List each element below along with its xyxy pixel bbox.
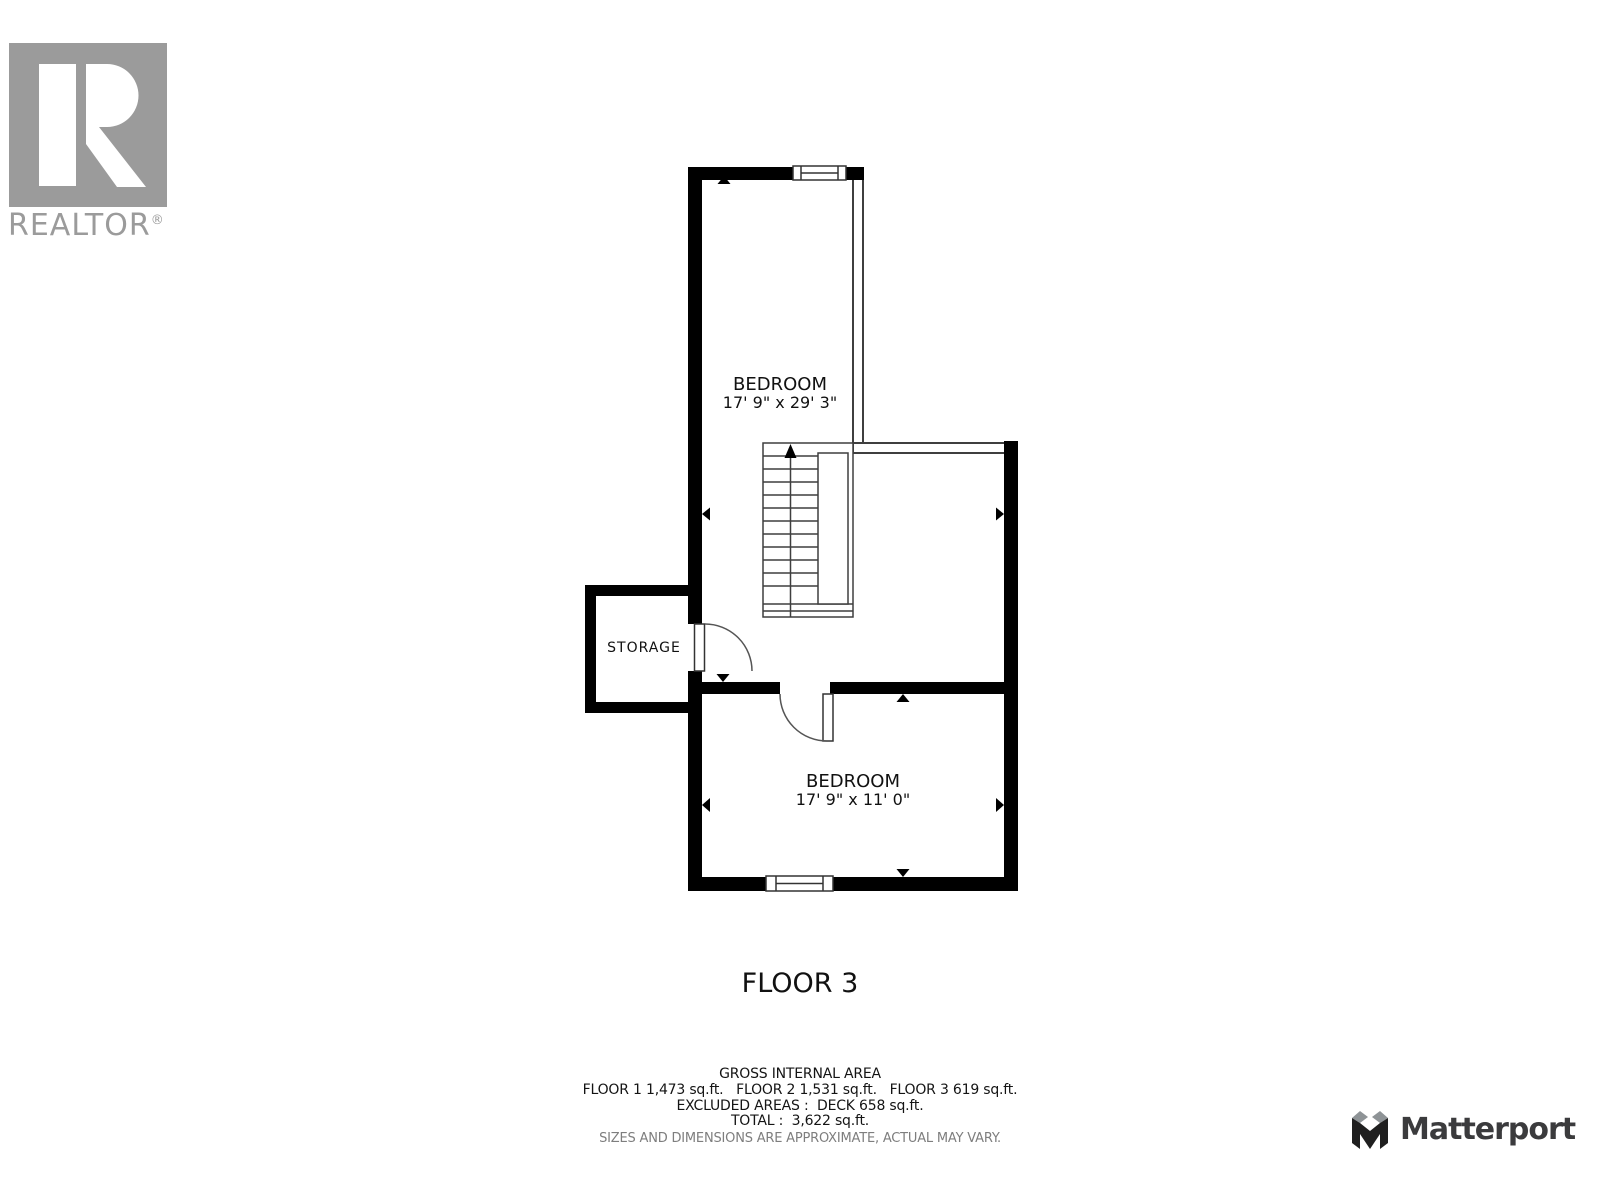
bedroom-door-swing-arc (780, 694, 827, 741)
floorplan-page: REALTOR® (0, 0, 1600, 1200)
matterport-logo-icon (1348, 1107, 1392, 1150)
stair-rail (818, 453, 848, 604)
arrow-right-landing-icon (996, 508, 1004, 521)
floorplan-drawing (0, 0, 1600, 1200)
wall-thin-upper-right (853, 176, 863, 453)
area-summary-title: GROSS INTERNAL AREA (0, 1066, 1600, 1082)
wall-storage-bottom (585, 702, 702, 713)
wall-storage-top (585, 585, 702, 596)
arrow-up-bedroom2-icon (897, 694, 910, 702)
arrow-left-landing-icon (702, 508, 710, 521)
wall-bottom (688, 877, 1018, 891)
wall-thin-horizontal (853, 443, 1005, 453)
bedroom2-dimensions: 17' 9" x 11' 0" (796, 790, 910, 809)
wall-storage-left (585, 585, 596, 713)
window-bottom (766, 876, 833, 891)
window-top (793, 166, 846, 180)
bedroom1-label: BEDROOM (733, 374, 827, 395)
wall-separating-right (830, 682, 1004, 694)
storage-door-leaf (695, 624, 705, 671)
arrow-down-storage-door-icon (717, 674, 730, 682)
arrow-left-bedroom2-icon (702, 798, 710, 812)
staircase (763, 443, 853, 617)
matterport-wordmark: Matterport (1400, 1112, 1575, 1147)
wall-left (688, 167, 702, 891)
bedroom-door-leaf (823, 694, 833, 741)
arrow-down-bedroom2-icon (897, 869, 910, 877)
area-summary-floors: FLOOR 1 1,473 sq.ft. FLOOR 2 1,531 sq.ft… (0, 1082, 1600, 1098)
wall-right (1004, 441, 1018, 891)
bedroom1-dimensions: 17' 9" x 29' 3" (723, 393, 837, 412)
bedroom2-label: BEDROOM (806, 771, 900, 792)
floor-title: FLOOR 3 (0, 968, 1600, 999)
wall-separating-left (702, 682, 780, 694)
arrow-right-bedroom2-icon (996, 798, 1004, 812)
storage-door-swing-arc (705, 624, 752, 671)
storage-label: STORAGE (607, 640, 681, 656)
